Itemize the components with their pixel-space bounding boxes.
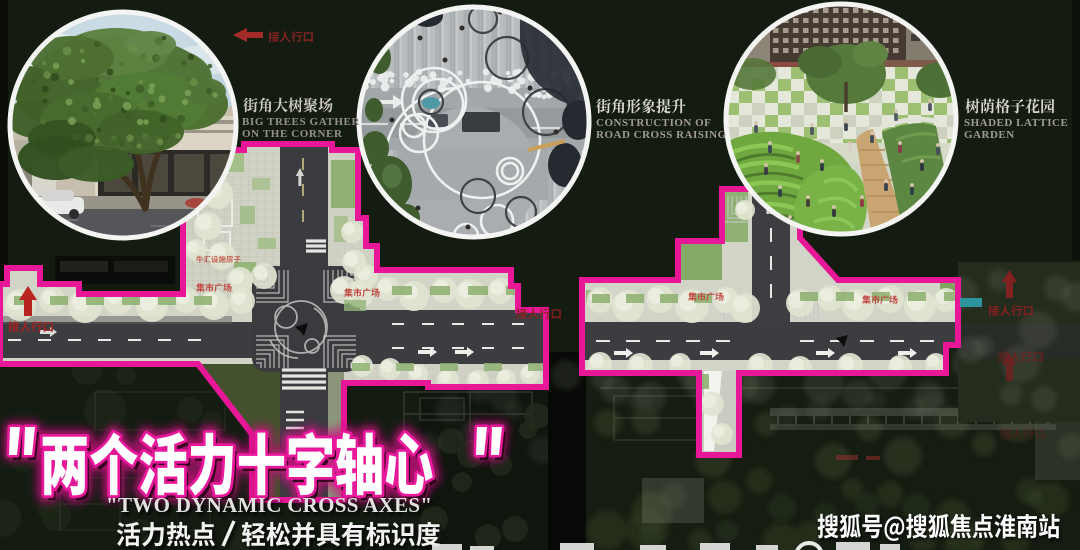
svg-text:ROAD CROSS RAISING: ROAD CROSS RAISING [596,129,727,141]
svg-text:"TWO DYNAMIC CROSS AXES": "TWO DYNAMIC CROSS AXES" [106,493,432,517]
svg-text:CONSTRUCTION OF: CONSTRUCTION OF [596,117,711,129]
svg-text:ON THE CORNER: ON THE CORNER [242,128,343,140]
svg-text:BIG TREES GATHER: BIG TREES GATHER [242,116,360,128]
svg-text:SHADED LATTICE: SHADED LATTICE [964,117,1068,129]
svg-text:GARDEN: GARDEN [964,129,1015,141]
